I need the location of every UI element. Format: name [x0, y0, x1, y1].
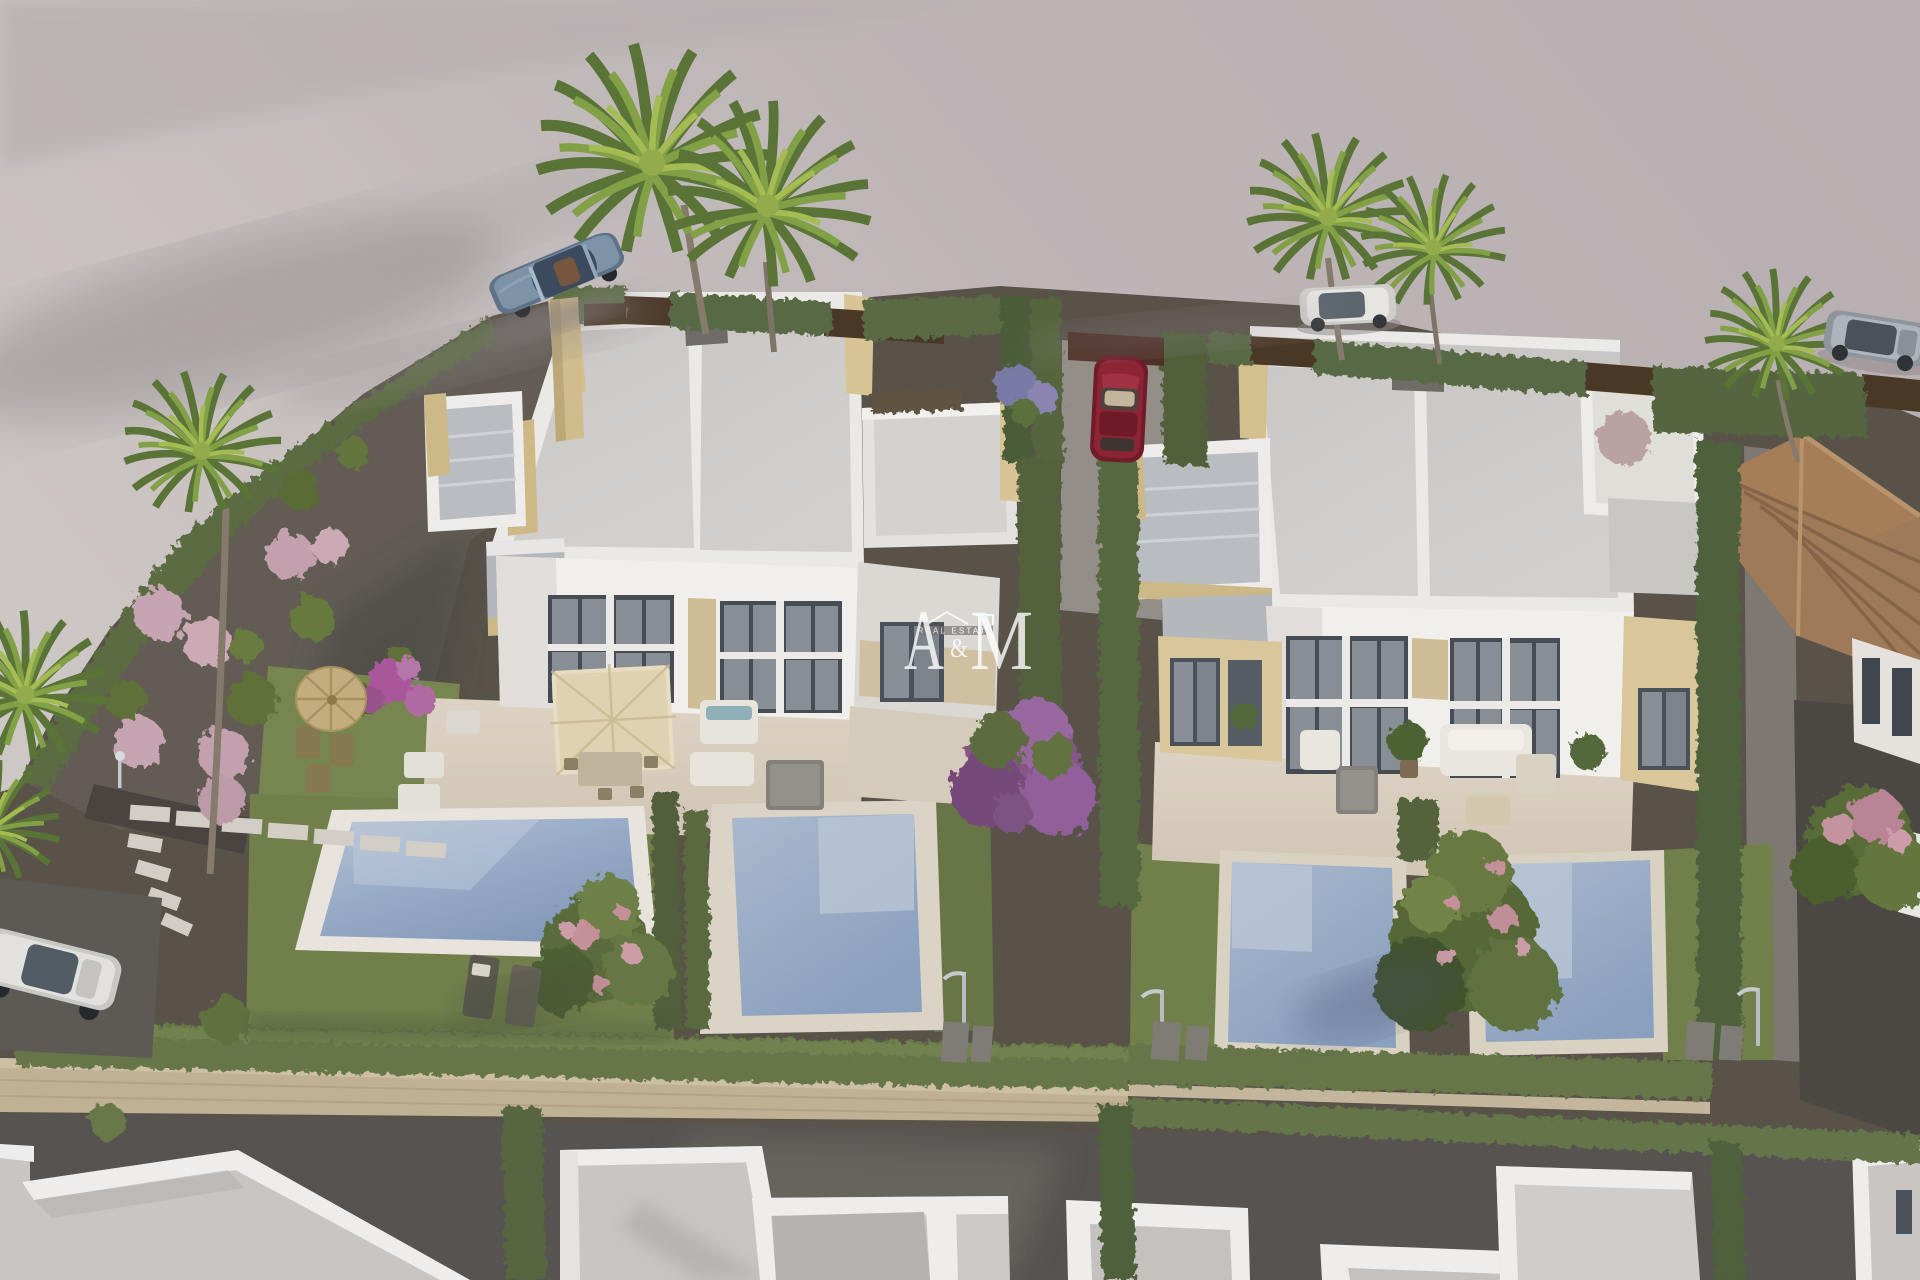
- svg-text:A: A: [904, 592, 944, 688]
- svg-text:M: M: [970, 592, 1033, 688]
- svg-text:&: &: [950, 633, 968, 663]
